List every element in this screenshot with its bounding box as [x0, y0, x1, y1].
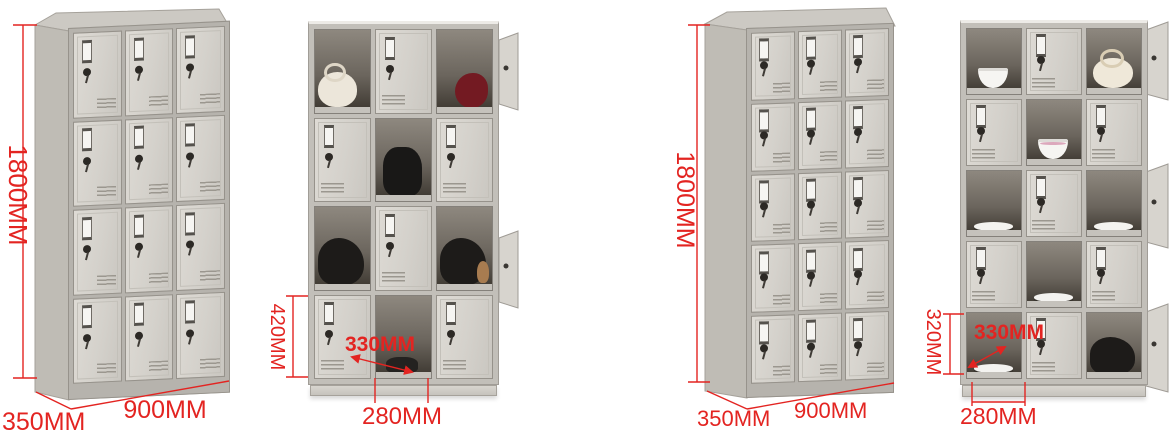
dimension-lines-layer [0, 0, 1172, 441]
depth-label: 350MM [697, 408, 763, 430]
compartment-height-label: 320MM [921, 298, 943, 386]
locker-dimension-diagram: 1800MM 350MM 900MM 420MM 330MM 280MM 180… [0, 0, 1172, 441]
compartment-height-line [286, 296, 308, 377]
compartment-width-arrow [969, 347, 1005, 367]
compartment-width-label: 330MM [343, 334, 417, 355]
height-label: 1800MM [3, 136, 31, 254]
depth-label: 350MM [2, 410, 84, 435]
compartment-width-label: 330MM [974, 322, 1042, 343]
compartment-height-line [943, 314, 964, 374]
height-label: 1800MM [669, 140, 697, 260]
compartment-width-arrow [352, 357, 412, 372]
depth-dimension-line [36, 392, 71, 409]
width-label: 900MM [123, 398, 207, 423]
width-label: 900MM [794, 400, 864, 422]
door-width-label: 280MM [360, 405, 444, 429]
door-width-lines [375, 378, 428, 403]
compartment-height-label: 420MM [265, 293, 287, 381]
door-width-label: 280MM [960, 405, 1034, 428]
